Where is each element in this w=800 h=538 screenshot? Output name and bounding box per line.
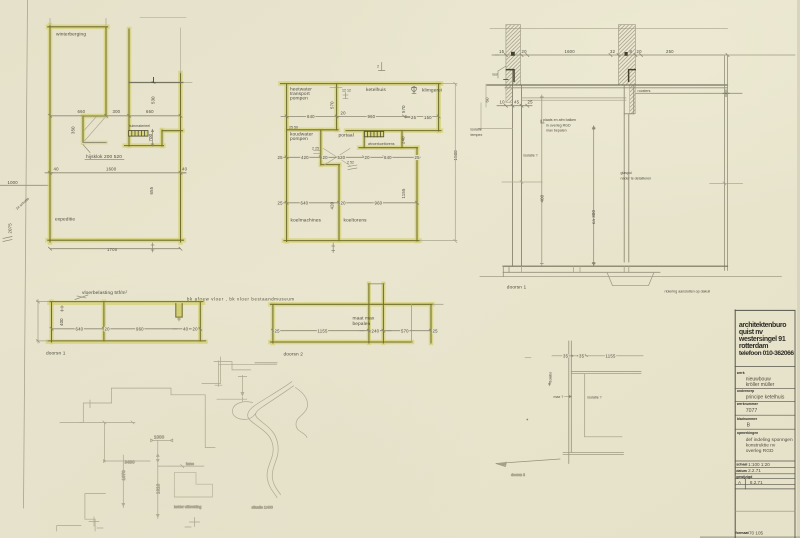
svg-text:1070: 1070	[121, 470, 126, 481]
svg-text:150: 150	[424, 115, 432, 120]
svg-text:nader te detailleren: nader te detailleren	[621, 176, 652, 180]
svg-text:pompen: pompen	[290, 97, 308, 102]
svg-text:bk afgew vloer , bk vloer best: bk afgew vloer , bk vloer bestaandmuseum	[187, 296, 294, 301]
svg-text:1000: 1000	[8, 180, 19, 185]
svg-text:20: 20	[522, 49, 528, 54]
svg-text:def indeling sponngen: def indeling sponngen	[746, 437, 793, 443]
svg-text:kelder uitbreiding: kelder uitbreiding	[174, 505, 201, 509]
svg-text:westersingel 91: westersingel 91	[738, 336, 786, 343]
svg-text:bepalen: bepalen	[353, 321, 371, 327]
svg-text:40: 40	[183, 326, 189, 331]
svg-text:1610: 1610	[155, 483, 160, 494]
svg-text:32: 32	[610, 49, 616, 54]
svg-text:situatie 1:400: situatie 1:400	[252, 506, 273, 510]
svg-text:doorsn 3: doorsn 3	[511, 473, 525, 477]
svg-text:1000: 1000	[154, 435, 165, 440]
svg-text:2: 2	[377, 65, 379, 69]
svg-text:klimgerei: klimgerei	[422, 87, 442, 93]
svg-text:isolatie: isolatie	[549, 372, 553, 383]
svg-text:8: 8	[630, 49, 633, 54]
svg-text:koeltorens: koeltorens	[344, 217, 368, 223]
svg-text:glaspui: glaspui	[621, 171, 633, 175]
svg-text:12 12: 12 12	[342, 89, 351, 93]
svg-text:1600: 1600	[106, 167, 117, 172]
svg-text:3490: 3490	[125, 459, 136, 464]
svg-text:portaal: portaal	[339, 132, 354, 138]
svg-text:afvoerkoeltorens: afvoerkoeltorens	[368, 142, 395, 146]
svg-text:25 50: 25 50	[289, 125, 298, 129]
svg-text:tempex: tempex	[471, 133, 483, 137]
svg-text:400: 400	[539, 194, 544, 202]
svg-text:25: 25	[528, 100, 534, 105]
svg-text:10: 10	[500, 100, 506, 105]
svg-text:roosters: roosters	[638, 89, 651, 93]
svg-text:datum: datum	[736, 469, 747, 473]
svg-text:B: B	[747, 422, 751, 428]
svg-text:20: 20	[341, 200, 347, 205]
svg-text:640: 640	[76, 326, 84, 331]
svg-text:570: 570	[401, 328, 409, 333]
svg-text:250: 250	[666, 49, 674, 54]
svg-text:isolatie: isolatie	[471, 128, 482, 132]
svg-text:torso: torso	[186, 462, 194, 466]
svg-text:25: 25	[275, 328, 281, 333]
svg-text:kröller müller: kröller müller	[746, 382, 775, 388]
svg-text:max bepalen: max bepalen	[546, 128, 567, 132]
svg-text:1155: 1155	[606, 353, 616, 358]
svg-text:1155: 1155	[401, 188, 406, 198]
svg-text:7077: 7077	[746, 408, 758, 414]
svg-text:ca 300: ca 300	[591, 209, 596, 224]
svg-text:25: 25	[433, 328, 439, 333]
svg-text:660: 660	[146, 109, 154, 114]
svg-text:20: 20	[323, 155, 329, 160]
svg-text:960: 960	[375, 200, 383, 205]
svg-text:35: 35	[579, 353, 585, 358]
svg-text:2075: 2075	[8, 223, 13, 234]
svg-text:maat max: maat max	[353, 315, 375, 321]
svg-text:quist nv: quist nv	[739, 329, 763, 336]
svg-text:420: 420	[330, 201, 335, 209]
svg-text:25: 25	[411, 115, 417, 120]
svg-text:winterberging: winterberging	[56, 32, 86, 38]
svg-text:1700: 1700	[107, 247, 118, 252]
svg-text:bladnummer: bladnummer	[737, 417, 758, 421]
svg-text:350: 350	[71, 126, 76, 134]
svg-text:opmerkingen: opmerkingen	[737, 431, 758, 435]
svg-text:660: 660	[78, 109, 86, 114]
svg-text:max ?: max ?	[554, 395, 564, 399]
svg-text:240: 240	[401, 136, 406, 144]
svg-text:35: 35	[563, 353, 569, 358]
svg-text:principe ketelhuis: principe ketelhuis	[746, 394, 785, 400]
svg-text:isolatie ?: isolatie ?	[588, 396, 602, 400]
svg-text:400: 400	[59, 318, 64, 326]
svg-text:40: 40	[182, 167, 188, 172]
svg-text:20: 20	[341, 110, 347, 115]
svg-text:doorsn 1: doorsn 1	[507, 285, 527, 291]
svg-text:architektenburo: architektenburo	[739, 322, 786, 329]
svg-text:655: 655	[149, 186, 154, 194]
svg-text:25: 25	[278, 155, 284, 160]
svg-text:640: 640	[301, 200, 309, 205]
svg-text:570: 570	[401, 105, 406, 113]
svg-text:570: 570	[329, 101, 334, 109]
svg-text:530: 530	[151, 96, 156, 104]
svg-text:schaal: schaal	[736, 463, 747, 467]
svg-text:960: 960	[136, 326, 144, 331]
svg-text:520: 520	[338, 155, 346, 160]
svg-text:2 25: 2 25	[312, 147, 319, 151]
svg-text:ketelhuis: ketelhuis	[366, 87, 386, 93]
svg-text:hijsklok 200 520: hijsklok 200 520	[86, 154, 122, 160]
svg-text:240: 240	[372, 328, 380, 333]
svg-text:2.2.71: 2.2.71	[748, 468, 761, 473]
svg-text:960: 960	[368, 114, 376, 119]
svg-text:640: 640	[384, 155, 392, 160]
svg-text:konstruktie nv: konstruktie nv	[746, 443, 776, 449]
svg-text:640: 640	[307, 114, 315, 119]
svg-text:werknummer: werknummer	[736, 402, 759, 406]
svg-text:in overleg RGD: in overleg RGD	[546, 123, 571, 127]
svg-text:20: 20	[365, 155, 371, 160]
svg-text:doorsn 1: doorsn 1	[46, 351, 66, 357]
svg-text:overleg RGD: overleg RGD	[746, 448, 774, 454]
svg-text:isol: isol	[493, 73, 499, 77]
svg-text:tuinmaterieel: tuinmaterieel	[130, 124, 151, 128]
svg-text:20: 20	[105, 326, 111, 331]
svg-text:2 52: 2 52	[347, 161, 354, 165]
svg-text:pompen: pompen	[290, 137, 308, 142]
svg-text:werk: werk	[736, 371, 745, 375]
svg-text:20: 20	[193, 326, 199, 331]
svg-text:onderwerp: onderwerp	[737, 389, 754, 393]
svg-text:1155: 1155	[318, 328, 328, 333]
svg-text:420: 420	[301, 155, 309, 160]
svg-text:40: 40	[54, 167, 60, 172]
svg-text:1600: 1600	[565, 49, 576, 54]
svg-text:riolering aansluiten op dakuil: riolering aansluiten op dakuil	[665, 290, 711, 294]
svg-text:telefoon 010-362066: telefoon 010-362066	[739, 350, 794, 357]
svg-text:15: 15	[499, 49, 505, 54]
svg-text:70 105: 70 105	[749, 530, 763, 535]
svg-text:gewijzigd: gewijzigd	[736, 475, 752, 479]
svg-text:1:100 1:20: 1:100 1:20	[748, 462, 770, 467]
svg-text:koelmachines: koelmachines	[291, 217, 322, 223]
svg-text:isolatie ?: isolatie ?	[524, 154, 538, 158]
svg-text:vloerbelasting 5tf/m2: vloerbelasting 5tf/m2	[82, 289, 128, 296]
svg-text:8.2.71: 8.2.71	[750, 480, 763, 485]
svg-text:doorsn 2: doorsn 2	[284, 352, 304, 358]
svg-text:1500: 1500	[453, 150, 458, 161]
svg-text:60: 60	[485, 97, 490, 103]
svg-text:25: 25	[415, 155, 421, 160]
svg-text:25: 25	[278, 200, 284, 205]
svg-text:expeditie: expeditie	[55, 217, 75, 223]
svg-text:300: 300	[113, 109, 121, 114]
svg-text:20: 20	[637, 49, 643, 54]
svg-text:plaats en afm balken: plaats en afm balken	[543, 118, 576, 122]
svg-text:formaat: formaat	[736, 531, 750, 535]
svg-text:45: 45	[514, 100, 520, 105]
